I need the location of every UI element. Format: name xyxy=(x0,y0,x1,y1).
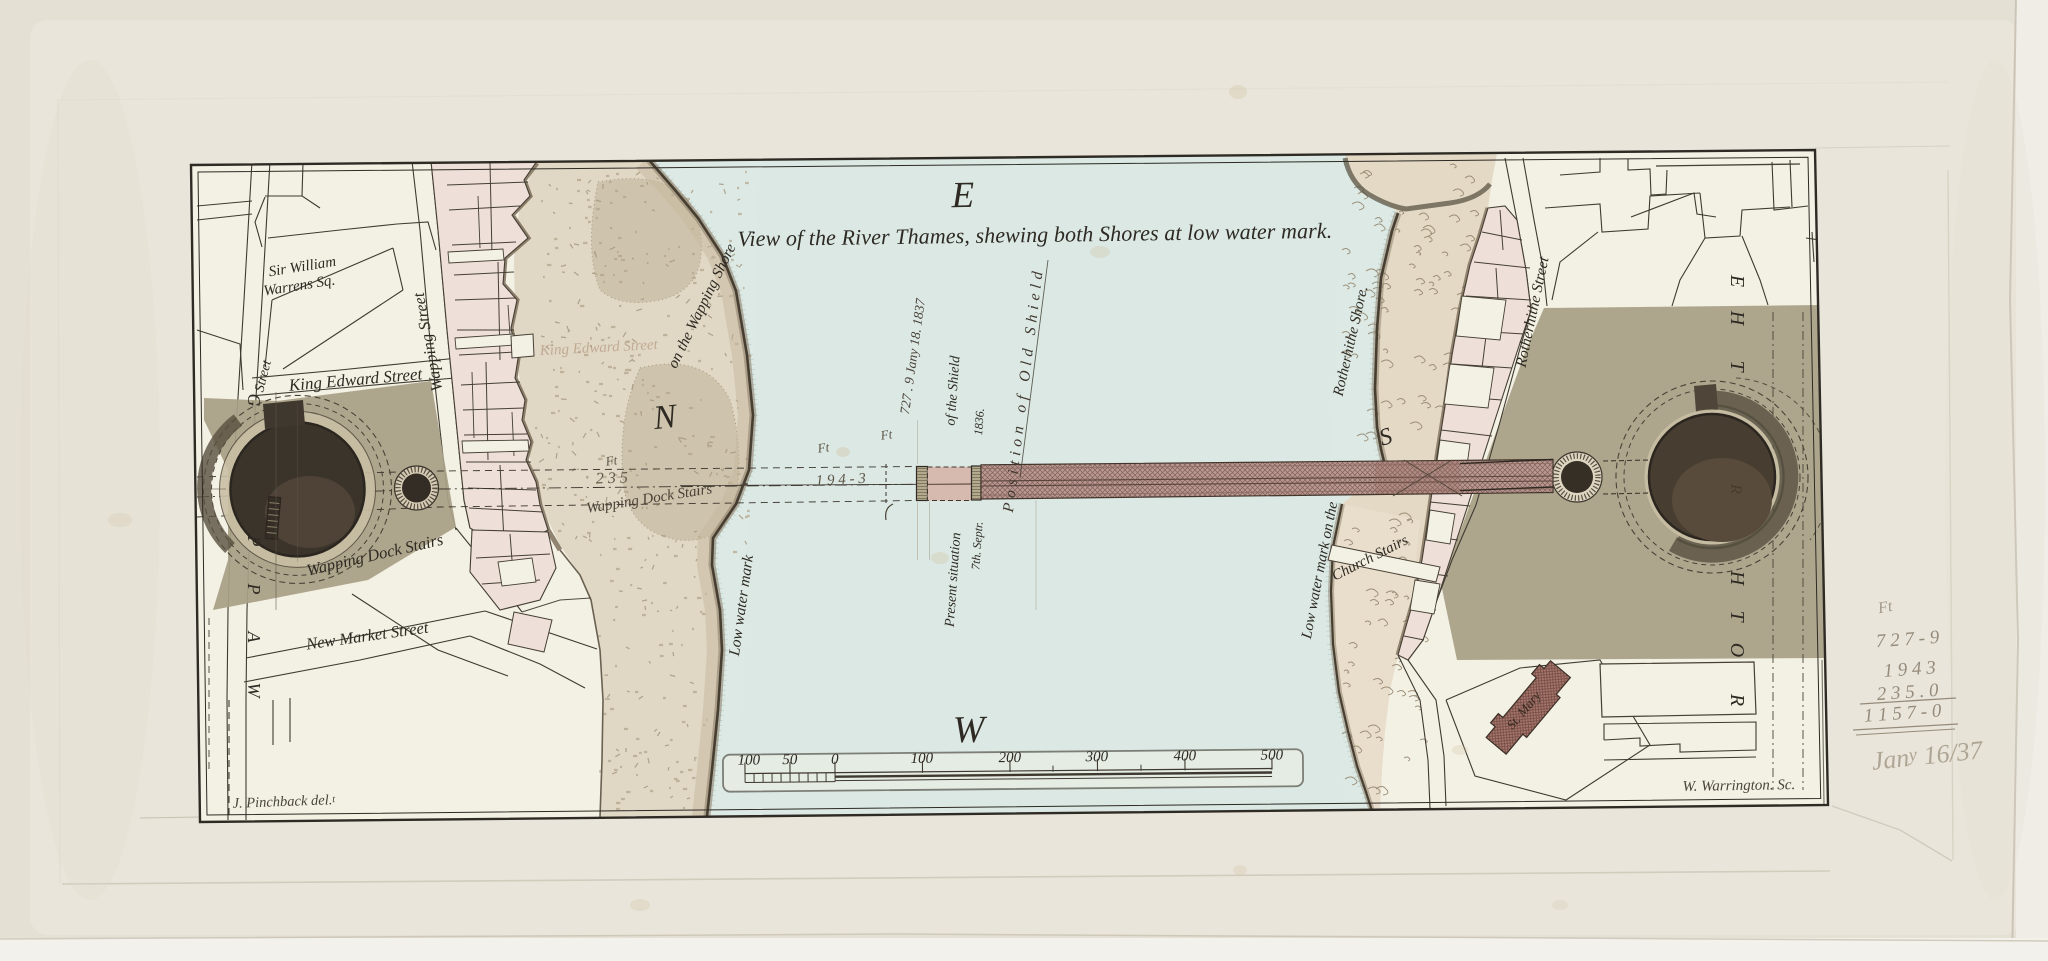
svg-text:W: W xyxy=(953,709,989,752)
svg-text:300: 300 xyxy=(1085,749,1109,765)
svg-text:W. Warrington. Sc.: W. Warrington. Sc. xyxy=(1682,777,1795,795)
svg-text:T: T xyxy=(1726,360,1748,373)
svg-text:1 9 4 3: 1 9 4 3 xyxy=(1883,657,1937,682)
svg-text:2 3 5: 2 3 5 xyxy=(596,469,629,487)
svg-text:R: R xyxy=(1727,483,1744,494)
svg-text:500: 500 xyxy=(1261,747,1284,763)
svg-text:P: P xyxy=(244,583,264,595)
svg-text:E: E xyxy=(950,175,974,216)
svg-text:H: H xyxy=(1726,310,1748,327)
svg-text:0: 0 xyxy=(831,752,839,768)
svg-text:1836.: 1836. xyxy=(971,408,987,436)
svg-text:G: G xyxy=(244,394,264,407)
svg-text:O: O xyxy=(1726,643,1748,657)
svg-text:E: E xyxy=(1726,274,1748,287)
svg-text:Ft: Ft xyxy=(816,439,831,456)
svg-text:100: 100 xyxy=(738,752,761,768)
svg-text:T: T xyxy=(1726,610,1748,623)
svg-text:7 2 7 - 9: 7 2 7 - 9 xyxy=(1875,627,1940,652)
svg-text:Ft: Ft xyxy=(879,426,894,443)
svg-text:100: 100 xyxy=(911,751,934,767)
svg-text:50: 50 xyxy=(782,752,798,768)
svg-text:P: P xyxy=(244,535,264,547)
svg-text:W: W xyxy=(244,683,264,700)
svg-text:1 9 4 - 3: 1 9 4 - 3 xyxy=(815,471,866,490)
svg-text:R: R xyxy=(1726,693,1748,706)
svg-text:200: 200 xyxy=(999,750,1022,766)
svg-text:H: H xyxy=(1726,570,1748,587)
svg-text:A: A xyxy=(244,631,264,644)
svg-text:400: 400 xyxy=(1174,748,1197,764)
svg-text:Ft: Ft xyxy=(604,452,619,469)
